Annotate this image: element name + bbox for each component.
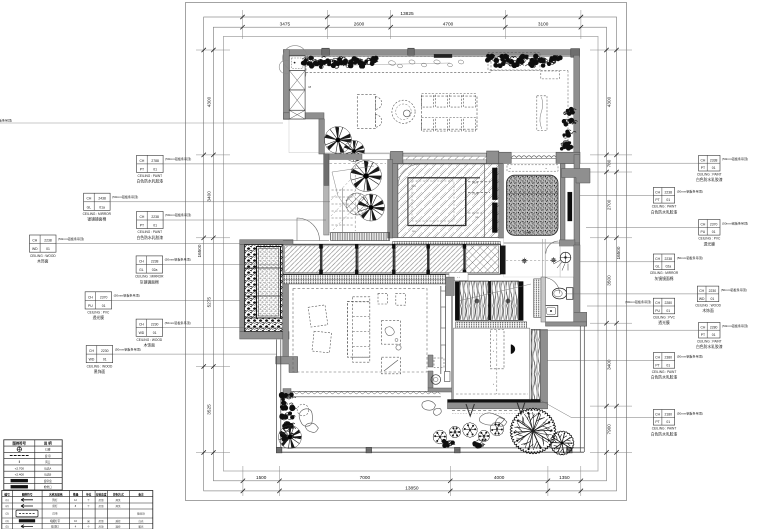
svg-text:2238: 2238 [151, 259, 159, 263]
svg-text:PT: PT [701, 333, 705, 337]
svg-text:(50mm铝板条吊顶): (50mm铝板条吊顶) [722, 323, 748, 328]
svg-text:白色防水乳胶漆: 白色防水乳胶漆 [696, 344, 723, 349]
svg-text:安装高度: 安装高度 [96, 492, 107, 496]
svg-text:编号: 编号 [4, 492, 10, 496]
svg-text:02a: 02a [152, 268, 158, 272]
svg-text:(50mm铝板条吊顶): (50mm铝板条吊顶) [677, 188, 703, 193]
svg-text:01: 01 [666, 309, 670, 313]
svg-text:遥控: 遥控 [115, 524, 121, 528]
svg-text:CH: CH [139, 159, 144, 163]
svg-text:(50mm铝板条吊顶): (50mm铝板条吊顶) [677, 353, 703, 358]
svg-text:4700: 4700 [443, 21, 454, 26]
svg-text:透光膜: 透光膜 [93, 315, 105, 320]
svg-text:白色防水乳胶漆: 白色防水乳胶漆 [651, 209, 678, 214]
svg-text:暗藏灯带: 暗藏灯带 [50, 519, 61, 523]
svg-text:(50mm铝板条吊顶): (50mm铝板条吊顶) [625, 299, 651, 304]
svg-text:3100: 3100 [538, 21, 549, 26]
svg-text:检修口: 检修口 [44, 485, 52, 489]
svg-text:PT: PT [655, 363, 659, 367]
svg-text:PT: PT [140, 167, 144, 171]
svg-text:02a: 02a [665, 265, 671, 269]
svg-text:CEILING : PAINT: CEILING : PAINT [652, 205, 677, 209]
svg-text:01: 01 [666, 420, 670, 424]
svg-text:01: 01 [712, 166, 716, 170]
svg-text:PU: PU [88, 304, 93, 308]
svg-text:CH: CH [139, 323, 144, 327]
svg-text:CH: CH [88, 295, 93, 299]
svg-text:随吊顶: 随吊顶 [137, 512, 145, 516]
svg-text:灰镜镜面棉: 灰镜镜面棉 [655, 276, 674, 281]
svg-text:(50mm铝板条吊顶): (50mm铝板条吊顶) [165, 320, 191, 325]
svg-text:(50mm铝板条吊顶): (50mm铝板条吊顶) [677, 255, 703, 260]
svg-text:CEILING : MIRROR: CEILING : MIRROR [83, 212, 112, 216]
svg-text:(5): (5) [5, 525, 8, 528]
svg-text:说 明: 说 明 [44, 440, 52, 445]
svg-text:GL: GL [87, 205, 92, 209]
svg-text:木饰面: 木饰面 [144, 343, 156, 348]
svg-text:CEILING : MIRROR: CEILING : MIRROR [650, 271, 679, 275]
svg-text:(50mm铝板条吊顶): (50mm铝板条吊顶) [677, 410, 703, 415]
svg-text:(1): (1) [5, 499, 8, 502]
svg-text:射灯: 射灯 [52, 504, 58, 508]
svg-text:▪: ▪ [545, 167, 546, 171]
svg-text:5275: 5275 [207, 297, 212, 308]
svg-text:透光膜: 透光膜 [704, 241, 716, 246]
svg-text:2238: 2238 [151, 215, 159, 219]
svg-text:CH: CH [700, 222, 705, 226]
svg-text:CH: CH [655, 356, 660, 360]
svg-text:2338: 2338 [710, 158, 718, 162]
svg-text:图例符号: 图例符号 [13, 440, 27, 445]
svg-text:+2.700: +2.700 [15, 466, 25, 470]
svg-text:4000: 4000 [494, 475, 505, 480]
svg-text:白色防水乳胶漆: 白色防水乳胶漆 [137, 179, 164, 184]
svg-text:(4): (4) [5, 520, 8, 523]
svg-text:2238: 2238 [665, 257, 673, 261]
svg-text:13850: 13850 [405, 485, 419, 491]
svg-text:CEILING : PAINT: CEILING : PAINT [138, 230, 163, 234]
svg-text:CH: CH [700, 158, 705, 162]
svg-text:2238: 2238 [44, 239, 52, 243]
svg-text:白色防水乳胶漆: 白色防水乳胶漆 [137, 235, 164, 240]
svg-text:风口: 风口 [45, 460, 51, 464]
svg-text:4300: 4300 [207, 96, 212, 107]
svg-text:CEILING : WOOD: CEILING : WOOD [695, 303, 721, 307]
svg-text:7000: 7000 [360, 475, 371, 480]
svg-text:GL: GL [655, 265, 660, 269]
svg-text:吊顶: 吊顶 [98, 504, 104, 508]
svg-text:2370: 2370 [100, 295, 108, 299]
svg-text:2788: 2788 [151, 159, 159, 163]
svg-text:PT: PT [140, 224, 144, 228]
svg-text:01: 01 [103, 358, 107, 362]
svg-text:黑饰面: 黑饰面 [94, 369, 106, 374]
svg-text:a*6L*B: a*6L*B [472, 194, 479, 196]
svg-text:▪: ▪ [493, 350, 494, 353]
svg-text:2600: 2600 [354, 21, 365, 26]
svg-text:吸顶灯: 吸顶灯 [51, 524, 59, 528]
svg-text:CEILING : MIRROR: CEILING : MIRROR [135, 275, 164, 279]
svg-text:图例符号: 图例符号 [22, 492, 33, 496]
svg-text:CH: CH [655, 301, 660, 305]
svg-text:5%: 5% [475, 217, 478, 219]
svg-text:(3): (3) [5, 513, 8, 516]
svg-text:PT: PT [655, 420, 659, 424]
svg-text:PU: PU [655, 309, 660, 313]
svg-text:01: 01 [712, 230, 716, 234]
svg-text:开关: 开关 [115, 498, 121, 502]
svg-text:SxWA: SxWA [525, 232, 532, 235]
svg-text:灯带: 灯带 [52, 512, 58, 516]
svg-text:01a: 01a [99, 205, 105, 209]
svg-text:PU: PU [701, 230, 706, 234]
svg-text:CEILING : PVC: CEILING : PVC [698, 237, 721, 241]
svg-text:窗帘盒: 窗帘盒 [44, 479, 52, 483]
svg-text:(50mm铝板条吊顶): (50mm铝板条吊顶) [115, 346, 141, 351]
svg-text:CH: CH [86, 197, 91, 201]
svg-text:(50mm铝板条吊顶): (50mm铝板条吊顶) [112, 194, 138, 199]
svg-text:CH: CH [700, 325, 705, 329]
svg-text:备注: 备注 [137, 492, 144, 496]
svg-text:吊顶: 吊顶 [98, 498, 104, 502]
svg-text:(50mm铝板条吊顶): (50mm铝板条吊顶) [722, 220, 748, 225]
svg-text:2370: 2370 [710, 222, 718, 226]
svg-text:01: 01 [666, 363, 670, 367]
svg-text:13825: 13825 [400, 11, 414, 17]
svg-text:CEILING : WOOD: CEILING : WOOD [30, 254, 56, 258]
svg-text:(50mm铝板条吊顶): (50mm铝板条吊顶) [165, 257, 191, 262]
svg-text:CH: CH [139, 215, 144, 219]
svg-text:01: 01 [153, 331, 157, 335]
svg-text:CEILING : WOOD: CEILING : WOOD [136, 338, 162, 342]
svg-text:CEILING : PAINT: CEILING : PAINT [652, 370, 677, 374]
svg-text:2238: 2238 [665, 190, 673, 194]
svg-text:PT: PT [655, 198, 659, 202]
svg-text:银镜镜面棉: 银镜镜面棉 [87, 217, 106, 222]
svg-text:CEILING : PVC: CEILING : PVC [87, 311, 110, 315]
svg-text:01: 01 [666, 198, 670, 202]
svg-text:WD: WD [89, 358, 95, 362]
svg-text:透光膜: 透光膜 [658, 320, 670, 325]
svg-text:灯槽: 灯槽 [45, 448, 51, 452]
svg-text:白色防水乳胶漆: 白色防水乳胶漆 [651, 431, 678, 436]
svg-text:WD: WD [32, 247, 38, 251]
svg-text:+2.400: +2.400 [15, 473, 25, 477]
svg-text:吊顶: 吊顶 [98, 519, 104, 523]
svg-text:(50mm铝板条吊顶): (50mm铝板条吊顶) [114, 293, 140, 298]
svg-text:3525: 3525 [207, 404, 212, 415]
svg-text:PT: PT [701, 166, 705, 170]
svg-text:CEILING : PAINT: CEILING : PAINT [652, 427, 677, 431]
svg-text:开关: 开关 [115, 504, 121, 508]
svg-text:01: 01 [711, 297, 715, 301]
svg-text:1500: 1500 [256, 475, 267, 480]
svg-text:16500: 16500 [616, 246, 621, 259]
svg-text:▪: ▪ [493, 339, 494, 342]
svg-text:01: 01 [712, 333, 716, 337]
svg-text:2380: 2380 [665, 356, 673, 360]
svg-text:白光: 白光 [138, 519, 144, 523]
svg-text:吊顶: 吊顶 [98, 524, 104, 528]
svg-text:CEILING : PAINT: CEILING : PAINT [138, 174, 163, 178]
svg-text:窗 帘: 窗 帘 [45, 454, 51, 458]
svg-text:标高A: 标高A [44, 466, 51, 470]
svg-text:单位: 单位 [86, 492, 92, 496]
svg-text:标高B: 标高B [44, 473, 51, 477]
svg-text:01: 01 [46, 247, 50, 251]
svg-text:2280: 2280 [710, 325, 718, 329]
svg-text:名称及规格: 名称及规格 [49, 492, 63, 496]
svg-text:WD: WD [699, 297, 705, 301]
svg-text:01: 01 [153, 224, 157, 228]
svg-text:▪: ▪ [509, 167, 510, 171]
svg-text:2438: 2438 [98, 197, 106, 201]
svg-text:(50mm铝板条吊顶): (50mm铝板条吊顶) [165, 212, 191, 217]
svg-text:▪ ▪: ▪ ▪ [457, 276, 460, 279]
svg-text:(50mm铝板条吊顶): (50mm铝板条吊顶) [721, 287, 747, 292]
svg-text:a*6L*B: a*6L*B [472, 183, 479, 185]
svg-text:CEILING : PAINT: CEILING : PAINT [697, 173, 722, 177]
svg-text:2700: 2700 [606, 199, 611, 210]
svg-text:2230: 2230 [709, 289, 717, 293]
svg-text:遥控: 遥控 [115, 519, 121, 523]
svg-text:01: 01 [102, 304, 106, 308]
svg-text:CEILING : WOOD: CEILING : WOOD [87, 364, 113, 368]
svg-text:白色防水乳胶漆: 白色防水乳胶漆 [696, 177, 723, 182]
svg-text:7900: 7900 [606, 424, 611, 435]
svg-text:1350: 1350 [559, 475, 570, 480]
svg-text:木饰面: 木饰面 [37, 258, 49, 263]
svg-text:CH: CH [89, 349, 94, 353]
svg-text:2230: 2230 [101, 349, 109, 353]
svg-text:CH: CH [655, 257, 660, 261]
svg-text:木饰面: 木饰面 [702, 308, 714, 313]
svg-text:暖光: 暖光 [138, 524, 144, 528]
svg-text:3500: 3500 [606, 275, 611, 286]
svg-text:CH: CH [655, 190, 660, 194]
svg-text:白色防水乳胶漆: 白色防水乳胶漆 [651, 374, 678, 379]
svg-text:2230: 2230 [151, 323, 159, 327]
svg-text:CH: CH [655, 412, 660, 416]
svg-text:2180: 2180 [665, 412, 673, 416]
svg-text:3475: 3475 [280, 21, 291, 26]
svg-text:数量: 数量 [72, 492, 79, 496]
svg-text:CEILING : PAINT: CEILING : PAINT [697, 340, 722, 344]
svg-text:(50mm铝板条吊顶): (50mm铝板条吊顶) [0, 118, 12, 123]
svg-text:GL: GL [139, 268, 144, 272]
svg-text:(50mm铝板条吊顶): (50mm铝板条吊顶) [722, 156, 748, 161]
svg-text:3400: 3400 [606, 359, 611, 370]
svg-text:▪: ▪ [493, 383, 494, 386]
svg-text:筒灯: 筒灯 [52, 498, 58, 502]
svg-text:3400: 3400 [207, 191, 212, 202]
svg-text:CH: CH [139, 259, 144, 263]
svg-text:WD: WD [139, 331, 145, 335]
svg-text:CH: CH [32, 239, 37, 243]
svg-text:(50mm铝板条吊顶): (50mm铝板条吊顶) [58, 236, 84, 241]
svg-text:CEILING : PVC: CEILING : PVC [653, 315, 676, 319]
svg-text:16500: 16500 [197, 244, 202, 257]
svg-text:2280: 2280 [665, 301, 673, 305]
svg-text:4300: 4300 [606, 96, 611, 107]
svg-text:01: 01 [153, 167, 157, 171]
svg-text:灰镜镜面棉: 灰镜镜面棉 [140, 279, 159, 284]
svg-text:控制方式: 控制方式 [113, 492, 124, 496]
svg-text:(2): (2) [5, 505, 8, 508]
svg-text:(50mm铝板条吊顶): (50mm铝板条吊顶) [165, 156, 191, 161]
svg-text:CH: CH [699, 289, 704, 293]
